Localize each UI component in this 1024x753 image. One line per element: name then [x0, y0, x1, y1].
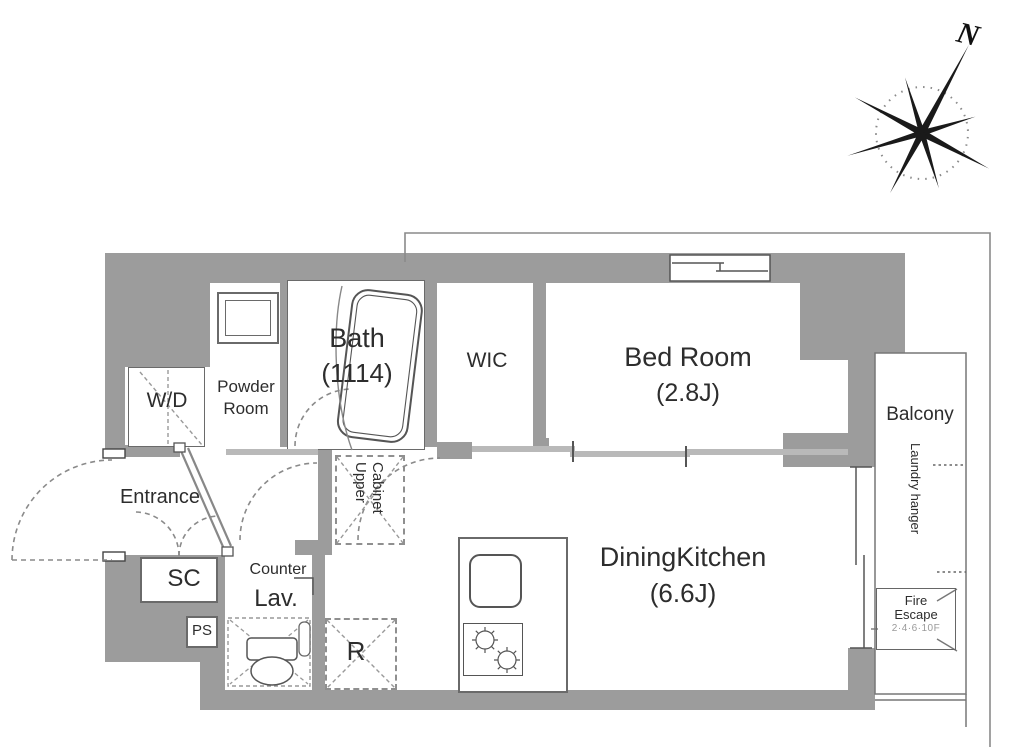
fire-escape-label-2: Escape [877, 608, 955, 622]
bath-size-label: (1114) [321, 360, 392, 387]
fire-escape-box: Fire Escape 2·4·6·10F [876, 588, 956, 650]
balcony-glass-door [850, 467, 872, 648]
pipe-space-label: PS [192, 623, 212, 639]
sliding-door-track-1 [472, 446, 575, 452]
lav-counter-label: Counter [250, 562, 307, 579]
bedroom-label: Bed Room [624, 343, 752, 371]
laundry-pole-marks [933, 465, 966, 572]
wall-bottom [200, 690, 875, 710]
wall-right-bottom [848, 648, 875, 710]
compass-rose [792, 0, 1024, 256]
kitchen-stove [463, 623, 523, 676]
floor-plan: Bath (1114) Powder Room W/D WIC Bed Room… [0, 0, 1024, 753]
wall-bath-wic [425, 283, 437, 447]
dining-kitchen-size-label: (6.6J) [650, 580, 716, 607]
toilet [228, 618, 310, 686]
dining-kitchen-label: DiningKitchen [600, 543, 767, 571]
wic-label: WIC [467, 350, 508, 372]
powder-room-label-1: Powder [217, 378, 275, 396]
wall-slide-stub [437, 442, 472, 459]
hall-door-track [226, 449, 318, 455]
compass-north-label: N [953, 16, 982, 54]
wall-wd-top-block [125, 283, 210, 367]
entrance-label: Entrance [120, 487, 200, 508]
powder-room-label-2: Room [223, 400, 268, 418]
wall-wic-bedroom [533, 283, 546, 447]
lav-label: Lav. [254, 586, 298, 611]
wall-entrance-cabinet [318, 450, 332, 548]
balcony-label: Balcony [886, 405, 954, 425]
wall-left-upper [105, 283, 125, 455]
wall-lav-right [312, 548, 325, 690]
bath-label: Bath [329, 324, 385, 352]
sliding-door-track-3 [685, 449, 848, 455]
powder-sink-basin [225, 300, 271, 336]
kitchen-sink [469, 554, 522, 608]
fire-escape-label-3: 2·4·6·10F [877, 622, 955, 635]
laundry-hanger-label: Laundry hanger [908, 443, 923, 534]
bedroom-size-label: (2.8J) [656, 380, 720, 406]
kitchen-counter-box [458, 537, 568, 693]
refrigerator-label: R [347, 638, 366, 665]
shoe-closet-label: SC [167, 566, 200, 591]
washer-dryer-label: W/D [147, 390, 188, 412]
fire-escape-label-1: Fire [877, 594, 955, 608]
sliding-door-track-2 [570, 451, 690, 457]
upper-cabinet-label: Upper Cabinet [352, 462, 386, 514]
wall-powder-right [280, 283, 287, 447]
wall-top [105, 253, 905, 283]
entrance-door [12, 449, 125, 561]
powder-sink [217, 292, 279, 344]
wall-top-right-block [800, 283, 905, 360]
